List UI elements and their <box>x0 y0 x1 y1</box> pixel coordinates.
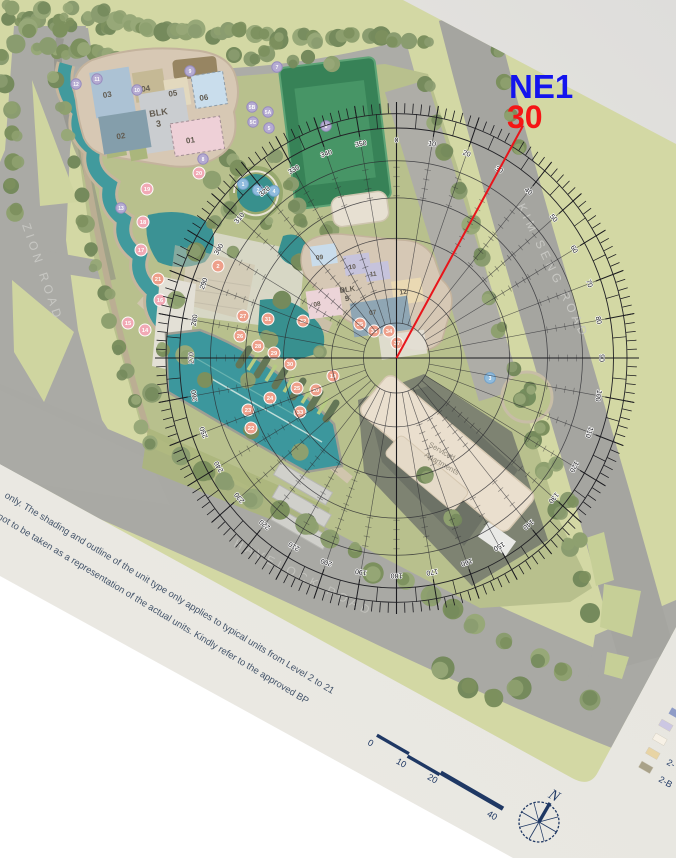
svg-text:30: 30 <box>507 99 543 135</box>
svg-text:270: 270 <box>189 352 196 364</box>
svg-text:90: 90 <box>598 354 605 362</box>
svg-text:0: 0 <box>395 138 399 145</box>
svg-text:180: 180 <box>391 571 403 578</box>
svg-text:10: 10 <box>428 140 437 148</box>
svg-text:80: 80 <box>594 316 602 325</box>
